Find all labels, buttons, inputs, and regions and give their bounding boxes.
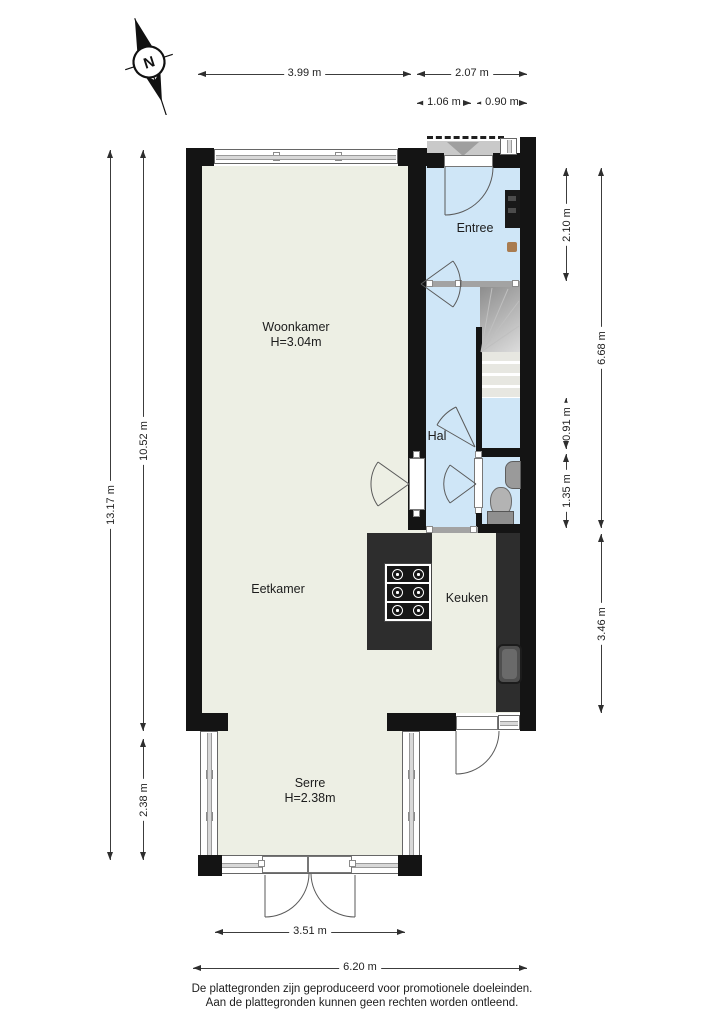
dimension-label: 2.10 m [561, 204, 573, 246]
window-mullion [408, 812, 415, 821]
door-jamb [349, 860, 356, 867]
room-ceiling-height: H=2.38m [250, 791, 370, 806]
toilet-sink [505, 461, 521, 489]
window-serre-left [200, 731, 218, 857]
window-kitchen-rear [498, 715, 520, 730]
dimension-label: 3.46 m [596, 603, 608, 645]
door-jamb [455, 280, 462, 287]
dimension-right-stair: 0.91 m [566, 398, 567, 449]
door-jamb [470, 526, 477, 533]
dimension-label: 3.99 m [284, 67, 326, 79]
room-name: Woonkamer [236, 320, 356, 335]
disclaimer-line-2: Aan de plattegronden kunnen geen rechten… [0, 996, 724, 1010]
dimension-left-main: 10.52 m [143, 150, 144, 731]
window-mullion [335, 152, 342, 161]
dimension-bottom-serre: 3.51 m [215, 932, 405, 933]
burner-icon [413, 587, 424, 598]
stove-burner-row [387, 603, 429, 619]
wall-bottom-middle-stub [387, 713, 456, 731]
door-jamb [426, 526, 433, 533]
dimension-top-entree: 2.07 m [417, 74, 527, 75]
wall-toilet-bottom [478, 524, 536, 533]
window-woonkamer-front [214, 149, 398, 164]
front-door-panel [444, 155, 493, 167]
window-mullion [206, 770, 213, 779]
dimension-label: 6.20 m [339, 961, 381, 973]
wall-stair-stringer [476, 327, 482, 449]
toilet-door-panel [474, 458, 483, 508]
dimension-label: 2.38 m [138, 779, 150, 821]
burner-icon [392, 605, 403, 616]
room-name: Eetkamer [218, 582, 338, 597]
room-label-woonkamer: Woonkamer H=3.04m [236, 320, 356, 350]
dimension-top-woonkamer: 3.99 m [198, 74, 411, 75]
wall-top-junction [398, 148, 427, 166]
burner-icon [392, 587, 403, 598]
dimension-label: 6.68 m [596, 327, 608, 369]
dimension-top-porch: 1.06 m [417, 103, 471, 104]
dimension-left-serre: 2.38 m [143, 739, 144, 860]
dimension-label: 0.90 m [481, 96, 523, 108]
kitchen-sink [497, 644, 522, 684]
dimension-right-toilet: 1.35 m [566, 454, 567, 528]
burner-icon [413, 605, 424, 616]
door-jamb [413, 451, 420, 458]
serre-french-doors-panel [262, 856, 352, 873]
kitchen-exterior-door-panel [456, 716, 498, 730]
serre-corner-post-right [398, 855, 422, 876]
hal-eetkamer-door-panel [409, 458, 425, 510]
porch-arrow-icon [447, 142, 479, 156]
dimension-label: 1.06 m [423, 96, 465, 108]
dimension-top-door: 0.90 m [477, 103, 527, 104]
wall-toilet-top [476, 448, 536, 457]
dimension-label: 13.17 m [105, 481, 117, 529]
kitchen-counter-right [496, 533, 520, 712]
door-jamb [413, 510, 420, 517]
room-label-hal: Hal [412, 429, 462, 444]
porch-canopy-outline [427, 136, 504, 139]
room-label-entree: Entree [440, 221, 510, 236]
stove-burner-row [387, 584, 429, 600]
room-label-eetkamer: Eetkamer [218, 582, 338, 597]
dimension-label: 3.51 m [289, 925, 331, 937]
window-mullion [206, 812, 213, 821]
meter-cupboard-detail [508, 208, 516, 213]
floor-serre-passage [228, 713, 387, 731]
compass-rose-icon: N [100, 10, 200, 115]
dimension-label: 10.52 m [138, 417, 150, 465]
door-jamb [258, 860, 265, 867]
window-entree-sidelight [500, 138, 517, 155]
window-serre-right [402, 731, 420, 857]
burner-icon [413, 569, 424, 580]
dimension-right-entree: 2.10 m [566, 168, 567, 281]
dimension-left-total: 13.17 m [110, 150, 111, 860]
wall-bottom-left-stub [186, 713, 228, 731]
room-label-serre: Serre H=2.38m [250, 776, 370, 806]
room-name: Entree [440, 221, 510, 236]
dimension-label: 2.07 m [451, 67, 493, 79]
staircase-winder [480, 287, 520, 352]
room-name: Keuken [430, 591, 504, 606]
room-label-keuken: Keuken [430, 591, 504, 606]
disclaimer-line-1: De plattegronden zijn geproduceerd voor … [0, 982, 724, 996]
door-jamb [475, 451, 482, 458]
room-name: Serre [250, 776, 370, 791]
door-jamb [426, 280, 433, 287]
meter-cupboard-detail [508, 196, 516, 201]
dimension-bottom-total: 6.20 m [193, 968, 527, 969]
burner-icon [392, 569, 403, 580]
stove-cooktop [384, 563, 432, 622]
wall-exterior-left [186, 148, 202, 713]
dimension-right-keuken: 3.46 m [601, 534, 602, 713]
room-name: Hal [412, 429, 462, 444]
dimension-label: 0.91 m [561, 403, 573, 445]
disclaimer: De plattegronden zijn geproduceerd voor … [0, 982, 724, 1010]
staircase-treads [480, 352, 520, 398]
stove-burner-row [387, 566, 429, 582]
wall-frontdoor-right-stub [493, 153, 520, 168]
door-jamb [512, 280, 519, 287]
wall-fixture [507, 242, 517, 252]
serre-corner-post-left [198, 855, 222, 876]
wall-exterior-right [520, 137, 536, 731]
dimension-label: 1.35 m [561, 470, 573, 512]
dimension-right-hal: 6.68 m [601, 168, 602, 528]
floorplan-canvas: N [0, 0, 724, 1024]
window-mullion [408, 770, 415, 779]
french-door-split [307, 857, 309, 872]
wall-frontdoor-left-stub [427, 153, 444, 168]
window-mullion [273, 152, 280, 161]
wall-entree-hal-partition [426, 281, 520, 287]
room-ceiling-height: H=3.04m [236, 335, 356, 350]
